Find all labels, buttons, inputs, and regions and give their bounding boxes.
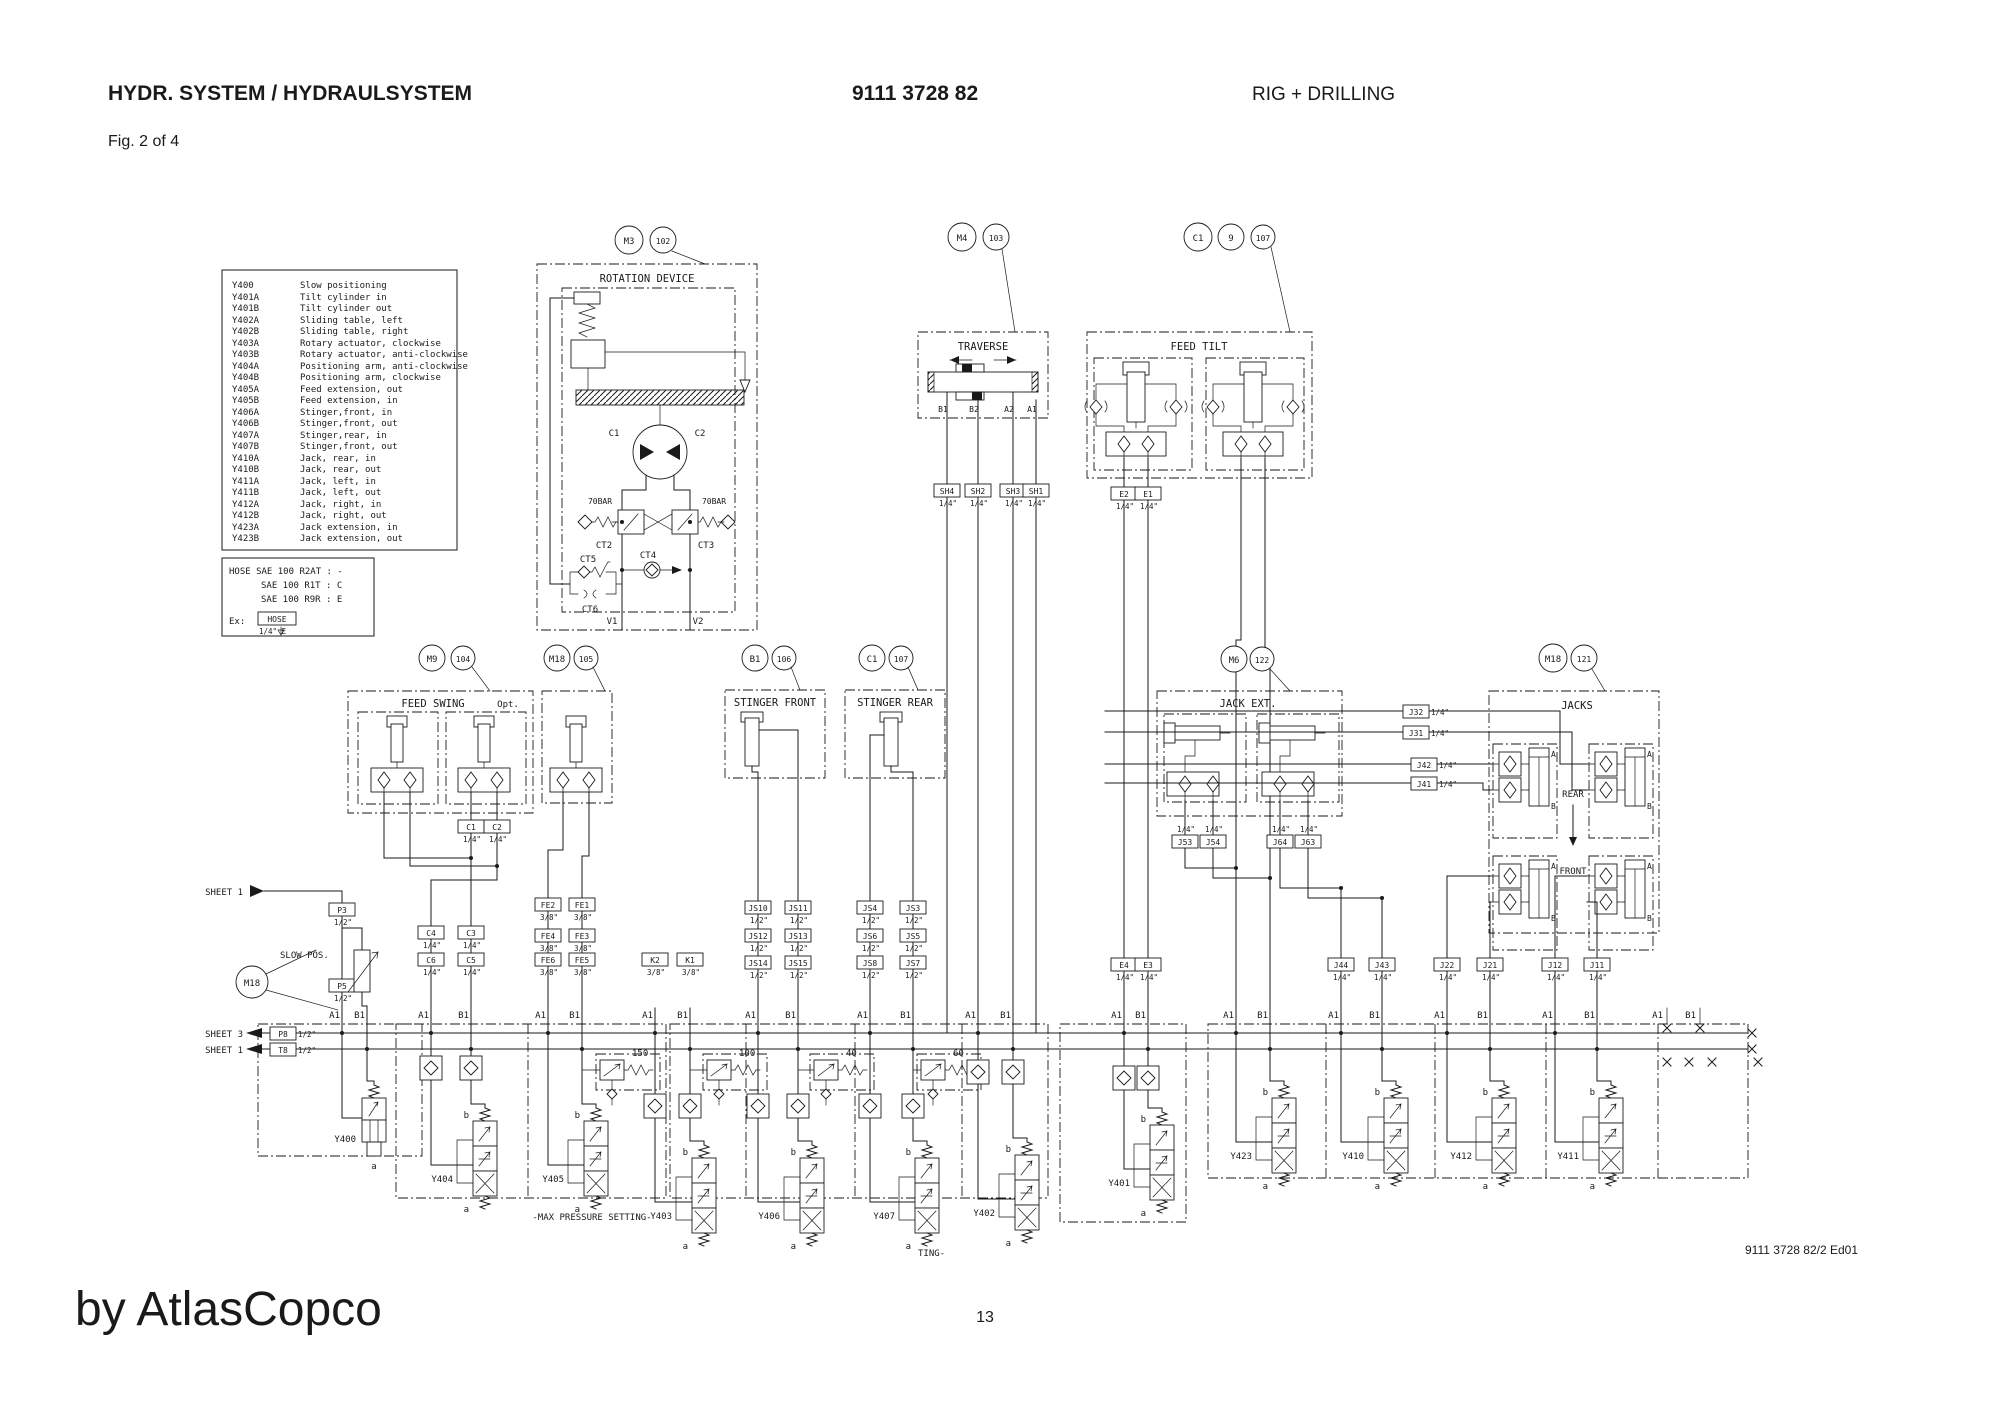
svg-text:1/4": 1/4"	[1482, 973, 1500, 982]
svg-text:J41: J41	[1417, 780, 1432, 789]
svg-text:104: 104	[456, 655, 471, 664]
port-label: JS111/2"	[785, 901, 811, 925]
port-label: K13/8"	[677, 953, 703, 977]
edition-label: 9111 3728 82/2 Ed01	[1745, 1243, 1858, 1257]
svg-text:3/8": 3/8"	[540, 968, 558, 977]
svg-text:3/8": 3/8"	[574, 944, 592, 953]
svg-text:B1: B1	[1685, 1011, 1696, 1021]
valve-station: A1B1 Y412	[1434, 1008, 1516, 1192]
svg-text:JACK EXT.: JACK EXT.	[1220, 698, 1277, 710]
svg-text:E2: E2	[1119, 490, 1129, 499]
port-label: JS121/2"	[745, 929, 771, 953]
svg-text:A1: A1	[535, 1011, 546, 1021]
svg-text:CT6: CT6	[582, 605, 598, 615]
svg-text:A1: A1	[1223, 1011, 1234, 1021]
svg-text:JS3: JS3	[906, 904, 921, 913]
schematic-page: b a a A B HYDR. SYSTEM / HYDRAULSYSTEM 9…	[0, 0, 2000, 1415]
port-label: P81/2"	[270, 1027, 316, 1040]
svg-text:1/4": 1/4"	[939, 499, 957, 508]
valve-station: A1B1 Y402	[965, 1008, 1039, 1249]
svg-text:Stinger,rear, in: Stinger,rear, in	[300, 431, 387, 441]
svg-text:1/2": 1/2"	[862, 916, 880, 925]
svg-text:J43: J43	[1375, 961, 1390, 970]
svg-text:1/4": 1/4"	[463, 968, 481, 977]
svg-text:A1: A1	[1434, 1011, 1445, 1021]
svg-text:TRAVERSE: TRAVERSE	[958, 341, 1009, 353]
svg-text:P3: P3	[337, 906, 347, 915]
svg-text:K2: K2	[650, 956, 660, 965]
svg-text:Stinger,front, in: Stinger,front, in	[300, 408, 392, 418]
svg-text:T8: T8	[278, 1046, 288, 1055]
valve-station: A1B1 Y410	[1328, 1008, 1408, 1192]
svg-text:1/2": 1/2"	[750, 916, 768, 925]
svg-text:Y423: Y423	[1230, 1152, 1252, 1162]
svg-text:122: 122	[1255, 656, 1270, 665]
port-label: FE13/8"	[569, 898, 595, 922]
svg-text:SH3: SH3	[1006, 487, 1021, 496]
svg-text:3/8": 3/8"	[574, 913, 592, 922]
svg-text:106: 106	[777, 655, 792, 664]
port-label: FE33/8"	[569, 929, 595, 953]
port-label: J311/4"	[1403, 726, 1449, 739]
svg-text:Rotary actuator, anti-clockwis: Rotary actuator, anti-clockwise	[300, 350, 468, 360]
svg-text:SH2: SH2	[971, 487, 986, 496]
svg-text:CT4: CT4	[640, 551, 656, 561]
svg-text:JS14: JS14	[748, 959, 767, 968]
svg-text:3/8": 3/8"	[540, 913, 558, 922]
port-label: C11/4"	[458, 820, 484, 844]
svg-text:Y404B: Y404B	[232, 373, 259, 383]
svg-text:Y403B: Y403B	[232, 350, 259, 360]
svg-text:E4: E4	[1119, 961, 1129, 970]
svg-text:J64: J64	[1273, 838, 1288, 847]
svg-text:Jack, left, out: Jack, left, out	[300, 488, 381, 498]
svg-text:1/2": 1/2"	[298, 1030, 316, 1039]
svg-text:B1: B1	[1369, 1011, 1380, 1021]
svg-text:E3: E3	[1143, 961, 1153, 970]
sheet1-ref: SHEET 1	[205, 1046, 243, 1056]
block-title: ROTATION DEVICE	[600, 273, 695, 285]
svg-text:C4: C4	[426, 929, 436, 938]
svg-text:A1: A1	[965, 1011, 976, 1021]
port-label: J111/4"	[1584, 958, 1610, 982]
port-label: JS61/2"	[857, 929, 883, 953]
svg-text:Y405B: Y405B	[232, 396, 259, 406]
svg-text:FE1: FE1	[575, 901, 590, 910]
port-label: SH41/4"	[934, 484, 960, 508]
port-label: FE23/8"	[535, 898, 561, 922]
svg-text:J31: J31	[1409, 729, 1424, 738]
svg-text:JS15: JS15	[788, 959, 807, 968]
port-label: FE53/8"	[569, 953, 595, 977]
svg-text:1/2": 1/2"	[905, 944, 923, 953]
svg-text:B1: B1	[900, 1011, 911, 1021]
port-label: J441/4"	[1328, 958, 1354, 982]
svg-text:C1: C1	[1193, 234, 1204, 244]
svg-text:1/4": 1/4"	[423, 968, 441, 977]
sheet3-ref: SHEET 3	[205, 1030, 243, 1040]
port-label: C61/4"	[418, 953, 444, 977]
svg-text:Slow positioning: Slow positioning	[300, 281, 387, 291]
svg-text:Y406A: Y406A	[232, 408, 260, 418]
valve-station: A1B1 Y411	[1542, 1008, 1623, 1192]
svg-text:1/2": 1/2"	[905, 971, 923, 980]
svg-text:J22: J22	[1440, 961, 1455, 970]
svg-text:Y404: Y404	[431, 1175, 453, 1185]
svg-text:1/4": 1/4"	[1300, 825, 1318, 834]
port-label: J631/4"	[1295, 825, 1321, 848]
svg-text:J21: J21	[1483, 961, 1498, 970]
svg-text:M9: M9	[427, 655, 438, 665]
svg-text:105: 105	[579, 655, 594, 664]
svg-text:3/8": 3/8"	[574, 968, 592, 977]
doc-number: 9111 3728 82	[852, 82, 978, 105]
rig-label: RIG + DRILLING	[1252, 84, 1395, 105]
svg-text:V2: V2	[693, 617, 704, 627]
header: HYDR. SYSTEM / HYDRAULSYSTEM 9111 3728 8…	[108, 82, 1395, 150]
svg-text:1/2": 1/2"	[334, 994, 352, 1003]
svg-text:M18: M18	[549, 655, 565, 665]
port-label: JS71/2"	[900, 956, 926, 980]
svg-text:Ex:: Ex:	[229, 617, 245, 627]
svg-text:A1: A1	[1542, 1011, 1553, 1021]
svg-text:C3: C3	[466, 929, 476, 938]
svg-text:Y406B: Y406B	[232, 419, 259, 429]
svg-text:1/4": 1/4"	[1005, 499, 1023, 508]
svg-text:J63: J63	[1301, 838, 1316, 847]
watermark: by AtlasCopco	[75, 1283, 382, 1336]
svg-text:Sliding table, right: Sliding table, right	[300, 327, 408, 337]
svg-text:B1: B1	[1477, 1011, 1488, 1021]
svg-text:HOSE SAE 100 R2AT : -: HOSE SAE 100 R2AT : -	[229, 567, 343, 577]
svg-text:1/2": 1/2"	[790, 971, 808, 980]
svg-text:1/4": 1/4"	[1439, 761, 1457, 770]
svg-text:1/4": 1/4"	[1374, 973, 1392, 982]
svg-text:JS7: JS7	[906, 959, 921, 968]
plugged-station: A1B1	[1652, 1008, 1762, 1066]
svg-text:Y411B: Y411B	[232, 488, 259, 498]
block-num: 102	[656, 237, 671, 246]
svg-text:FE3: FE3	[575, 932, 590, 941]
valve-station: A1B1 Y401	[1108, 1008, 1174, 1219]
port-label: J321/4"	[1403, 705, 1449, 718]
svg-text:Y402B: Y402B	[232, 327, 259, 337]
svg-text:1/4": 1/4"	[1333, 973, 1351, 982]
port-label: J421/4"	[1411, 758, 1457, 771]
svg-text:K1: K1	[685, 956, 695, 965]
port-label: J531/4"	[1172, 825, 1198, 848]
page-title: HYDR. SYSTEM / HYDRAULSYSTEM	[108, 82, 472, 105]
relief-setting: 150	[632, 1049, 648, 1059]
port-label: J121/4"	[1542, 958, 1568, 982]
svg-text:J32: J32	[1409, 708, 1424, 717]
svg-text:JS10: JS10	[748, 904, 767, 913]
svg-text:B1: B1	[750, 655, 761, 665]
port-label: JS131/2"	[785, 929, 811, 953]
svg-text:Positioning arm, anti-clockwis: Positioning arm, anti-clockwise	[300, 362, 468, 372]
svg-text:1/4": 1/4"	[1028, 499, 1046, 508]
svg-text:1/4": 1/4"	[463, 941, 481, 950]
svg-text:FEED TILT: FEED TILT	[1171, 341, 1229, 353]
stinger-rear-block: C1 107 STINGER REAR	[845, 645, 945, 1033]
port-label: P51/2"	[329, 979, 355, 1003]
svg-text:1/2": 1/2"	[750, 971, 768, 980]
svg-text:Y423A: Y423A	[232, 523, 260, 533]
svg-text:Tilt cylinder in: Tilt cylinder in	[300, 293, 387, 303]
svg-text:Jack, right, in: Jack, right, in	[300, 500, 381, 510]
svg-text:B1: B1	[458, 1011, 469, 1021]
svg-text:A1: A1	[857, 1011, 868, 1021]
svg-text:SH1: SH1	[1029, 487, 1044, 496]
svg-text:Y400: Y400	[334, 1135, 356, 1145]
svg-text:B1: B1	[354, 1011, 365, 1021]
port-label: JS31/2"	[900, 901, 926, 925]
page-number: 13	[976, 1309, 994, 1326]
svg-text:Y407B: Y407B	[232, 442, 259, 452]
svg-text:FE2: FE2	[541, 901, 556, 910]
svg-text:Y423B: Y423B	[232, 534, 259, 544]
slow-pos-label: SLOW POS.	[280, 951, 329, 961]
svg-text:Jack, left, in: Jack, left, in	[300, 477, 376, 487]
svg-text:A1: A1	[1652, 1011, 1663, 1021]
relief-setting: 100	[739, 1049, 755, 1059]
svg-text:Y410: Y410	[1342, 1152, 1364, 1162]
valve-station: A1B1 Y423	[1223, 1008, 1296, 1192]
svg-text:M6: M6	[1229, 656, 1240, 666]
junction-dots	[340, 520, 1599, 1051]
port-label: FE43/8"	[535, 929, 561, 953]
svg-text:V1: V1	[607, 617, 618, 627]
svg-text:J53: J53	[1178, 838, 1193, 847]
svg-text:Y402: Y402	[973, 1209, 995, 1219]
svg-text:1/4": 1/4"	[1589, 973, 1607, 982]
svg-text:70BAR: 70BAR	[702, 497, 726, 506]
port-label: JS151/2"	[785, 956, 811, 980]
valve-station: A1B1 Y403 100	[642, 1008, 767, 1252]
svg-text:Y411: Y411	[1557, 1152, 1579, 1162]
svg-text:107: 107	[894, 655, 909, 664]
svg-text:Y412: Y412	[1450, 1152, 1472, 1162]
svg-text:P8: P8	[278, 1030, 288, 1039]
port-label: JS41/2"	[857, 901, 883, 925]
port-label: J641/4"	[1267, 825, 1293, 848]
svg-text:JS6: JS6	[863, 932, 878, 941]
svg-text:1/4": 1/4"	[1116, 502, 1134, 511]
svg-text:Opt.: Opt.	[497, 700, 519, 710]
svg-text:Y410B: Y410B	[232, 465, 259, 475]
svg-text:B1: B1	[1584, 1011, 1595, 1021]
svg-text:A1: A1	[329, 1011, 340, 1021]
svg-text:Y402A: Y402A	[232, 316, 260, 326]
svg-text:1/4": 1/4"	[463, 835, 481, 844]
port-label: SH31/4"	[1000, 484, 1026, 508]
legend-table: Y400Slow positioning Y401ATilt cylinder …	[222, 270, 468, 550]
svg-text:Jack extension, in: Jack extension, in	[300, 523, 398, 533]
svg-text:C1: C1	[609, 429, 620, 439]
hose-legend: HOSE SAE 100 R2AT : - SAE 100 R1T : C SA…	[222, 558, 374, 636]
svg-text:JS4: JS4	[863, 904, 878, 913]
svg-text:C1: C1	[466, 823, 476, 832]
port-label: JS141/2"	[745, 956, 771, 980]
svg-text:1/2": 1/2"	[790, 944, 808, 953]
svg-text:Y404A: Y404A	[232, 362, 260, 372]
svg-text:3/8": 3/8"	[647, 968, 665, 977]
svg-text:1/2": 1/2"	[750, 944, 768, 953]
svg-text:STINGER REAR: STINGER REAR	[857, 697, 934, 709]
port-label: C21/4"	[484, 820, 510, 844]
setting-note: TING-	[918, 1249, 945, 1259]
svg-text:9: 9	[1228, 234, 1233, 244]
svg-text:B1: B1	[677, 1011, 688, 1021]
port-label: P31/2"	[329, 903, 355, 927]
svg-text:B1: B1	[1135, 1011, 1146, 1021]
port-label: FE63/8"	[535, 953, 561, 977]
port-label: J541/4"	[1200, 825, 1226, 848]
svg-text:J12: J12	[1548, 961, 1563, 970]
rotation-device-block: M3 102 ROTATION DEVICE C1 C2 70BAR 70BAR…	[537, 226, 757, 630]
svg-text:A1: A1	[1328, 1011, 1339, 1021]
svg-text:FE4: FE4	[541, 932, 556, 941]
m18-tag: M18	[244, 979, 260, 989]
svg-text:A1: A1	[418, 1011, 429, 1021]
port-label: J431/4"	[1369, 958, 1395, 982]
port-label: E11/4"	[1135, 487, 1161, 511]
svg-text:Jack, rear, out: Jack, rear, out	[300, 465, 381, 475]
svg-text:JS13: JS13	[788, 932, 807, 941]
port-label: E31/4"	[1135, 958, 1161, 982]
svg-text:1/4": 1/4"	[1431, 729, 1449, 738]
svg-text:Feed extension, in: Feed extension, in	[300, 396, 398, 406]
svg-text:J44: J44	[1334, 961, 1349, 970]
svg-text:Y412A: Y412A	[232, 500, 260, 510]
svg-text:1/4": 1/4"	[1205, 825, 1223, 834]
svg-text:1/2": 1/2"	[905, 916, 923, 925]
svg-text:1/2": 1/2"	[790, 916, 808, 925]
relief-setting: 60	[953, 1049, 964, 1059]
svg-text:121: 121	[1577, 655, 1592, 664]
svg-text:1/4": 1/4"	[1272, 825, 1290, 834]
svg-text:SAE 100 R9R : E: SAE 100 R9R : E	[261, 595, 342, 605]
port-label: J411/4"	[1411, 777, 1457, 790]
svg-text:A1: A1	[745, 1011, 756, 1021]
valve-station: A1B1 Y405 150	[535, 1008, 660, 1215]
sheet1-top-ref: SHEET 1	[205, 888, 243, 898]
svg-text:1/2": 1/2"	[298, 1046, 316, 1055]
port-label: J211/4"	[1477, 958, 1503, 982]
svg-text:CT5: CT5	[580, 555, 596, 565]
stinger-front-block: B1 106 STINGER FRONT	[725, 645, 825, 1033]
port-label: JS51/2"	[900, 929, 926, 953]
port-labels: C41/4" C31/4" C61/4" C51/4" FE23/8" FE13…	[418, 484, 1610, 982]
port-label: JS81/2"	[857, 956, 883, 980]
svg-text:FEED SWING: FEED SWING	[401, 698, 464, 710]
port-label: C51/4"	[458, 953, 484, 977]
svg-text:C1: C1	[867, 655, 878, 665]
svg-text:C6: C6	[426, 956, 436, 965]
port-label: K23/8"	[642, 953, 668, 977]
figure-label: Fig. 2 of 4	[108, 133, 179, 150]
block-tag: M3	[624, 237, 635, 247]
svg-text:P5: P5	[337, 982, 347, 991]
svg-text:JS8: JS8	[863, 959, 878, 968]
svg-text:B1: B1	[569, 1011, 580, 1021]
svg-text:3/8": 3/8"	[540, 944, 558, 953]
svg-text:1/4": 1/4"	[423, 941, 441, 950]
svg-text:Y410A: Y410A	[232, 454, 260, 464]
svg-text:107: 107	[1256, 234, 1271, 243]
svg-text:Feed extension, out: Feed extension, out	[300, 385, 403, 395]
svg-text:C5: C5	[466, 956, 476, 965]
svg-text:1/4": 1/4"	[1177, 825, 1195, 834]
svg-text:Y412B: Y412B	[232, 511, 259, 521]
svg-text:Tilt cylinder out: Tilt cylinder out	[300, 304, 392, 314]
svg-text:CT3: CT3	[698, 541, 714, 551]
svg-text:Y401: Y401	[1108, 1179, 1130, 1189]
svg-text:Y407A: Y407A	[232, 431, 260, 441]
svg-text:Y401A: Y401A	[232, 293, 260, 303]
svg-text:J11: J11	[1590, 961, 1605, 970]
traverse-block: M4 103 TRAVERSE B1 B2 A2 A1	[918, 223, 1048, 1033]
svg-text:1/4": 1/4"	[1140, 502, 1158, 511]
svg-text:JS11: JS11	[788, 904, 807, 913]
svg-text:JACKS: JACKS	[1561, 700, 1593, 712]
svg-text:FE6: FE6	[541, 956, 556, 965]
svg-text:A1: A1	[1111, 1011, 1122, 1021]
port-label: JS101/2"	[745, 901, 771, 925]
manifold: SHEET 1 P31/2" P51/2" M18 SLOW POS. SHEE…	[205, 484, 1762, 1259]
svg-text:B1: B1	[1257, 1011, 1268, 1021]
svg-text:Y405A: Y405A	[232, 385, 260, 395]
svg-text:1/4": 1/4"	[1439, 973, 1457, 982]
svg-text:Jack, rear, in: Jack, rear, in	[300, 454, 376, 464]
svg-text:C2: C2	[695, 429, 706, 439]
svg-text:J42: J42	[1417, 761, 1432, 770]
svg-text:70BAR: 70BAR	[588, 497, 612, 506]
rear-label: REAR	[1562, 790, 1584, 800]
footer: 9111 3728 82/2 Ed01 by AtlasCopco 13	[75, 1243, 1858, 1336]
svg-text:A1: A1	[642, 1011, 653, 1021]
svg-text:FE5: FE5	[575, 956, 590, 965]
svg-text:Rotary actuator, clockwise: Rotary actuator, clockwise	[300, 339, 441, 349]
svg-text:M18: M18	[1545, 655, 1561, 665]
port-label: C41/4"	[418, 926, 444, 950]
svg-text:B1: B1	[785, 1011, 796, 1021]
svg-text:Y407: Y407	[873, 1212, 895, 1222]
svg-text:1/2": 1/2"	[862, 944, 880, 953]
svg-text:C2: C2	[492, 823, 502, 832]
port-label: SH21/4"	[965, 484, 991, 508]
svg-text:1/4": 1/4"	[1547, 973, 1565, 982]
max-pressure-note: -MAX PRESSURE SETTING-	[532, 1213, 651, 1223]
svg-text:Sliding table, left: Sliding table, left	[300, 316, 403, 326]
svg-text:JS5: JS5	[906, 932, 921, 941]
hydraulic-schematic: b a a A B HYDR. SYSTEM / HYDRAULSYSTEM 9…	[0, 0, 2000, 1415]
relief-setting: 40	[846, 1049, 857, 1059]
svg-text:CT2: CT2	[596, 541, 612, 551]
svg-text:Y406: Y406	[758, 1212, 780, 1222]
port-label: E41/4"	[1111, 958, 1137, 982]
valve-station: A1B1 Y404	[418, 1008, 497, 1215]
svg-text:1/4": 1/4"	[1431, 708, 1449, 717]
svg-text:Y403: Y403	[650, 1212, 672, 1222]
svg-text:Y401B: Y401B	[232, 304, 259, 314]
port-label: C31/4"	[458, 926, 484, 950]
svg-text:J54: J54	[1206, 838, 1221, 847]
svg-text:M4: M4	[957, 234, 968, 244]
svg-text:E1: E1	[1143, 490, 1153, 499]
svg-text:Y411A: Y411A	[232, 477, 260, 487]
svg-text:SAE 100 R1T : C: SAE 100 R1T : C	[261, 581, 342, 591]
